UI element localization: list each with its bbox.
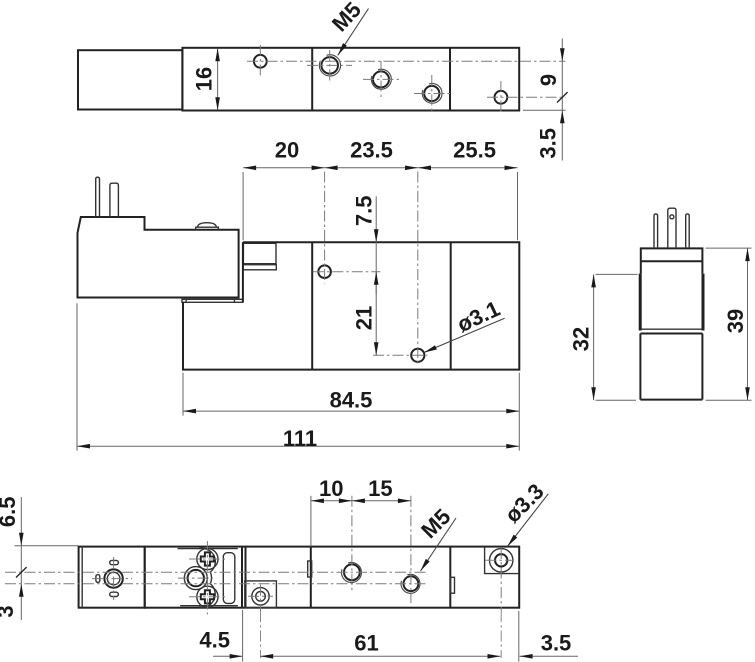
svg-text:6.5: 6.5: [0, 497, 20, 528]
svg-text:ø3.3: ø3.3: [500, 479, 549, 528]
svg-text:10: 10: [319, 476, 343, 501]
svg-text:M5: M5: [327, 0, 366, 36]
svg-text:61: 61: [354, 631, 378, 656]
svg-text:84.5: 84.5: [330, 388, 373, 413]
svg-text:20: 20: [275, 137, 299, 162]
svg-text:3.5: 3.5: [536, 128, 561, 159]
svg-text:25.5: 25.5: [453, 137, 496, 162]
svg-text:7.5: 7.5: [351, 196, 376, 227]
svg-text:39: 39: [723, 309, 748, 333]
svg-text:ø3.1: ø3.1: [453, 296, 503, 337]
svg-text:16: 16: [192, 67, 217, 91]
svg-text:21: 21: [351, 306, 376, 330]
svg-text:15: 15: [368, 476, 392, 501]
svg-text:M5: M5: [416, 504, 455, 543]
svg-text:23.5: 23.5: [350, 137, 393, 162]
svg-text:3.5: 3.5: [541, 631, 572, 656]
svg-text:9: 9: [536, 74, 561, 86]
svg-text:111: 111: [283, 426, 317, 451]
svg-text:3: 3: [0, 605, 18, 617]
svg-text:32: 32: [569, 327, 594, 351]
svg-text:4.5: 4.5: [199, 628, 230, 653]
